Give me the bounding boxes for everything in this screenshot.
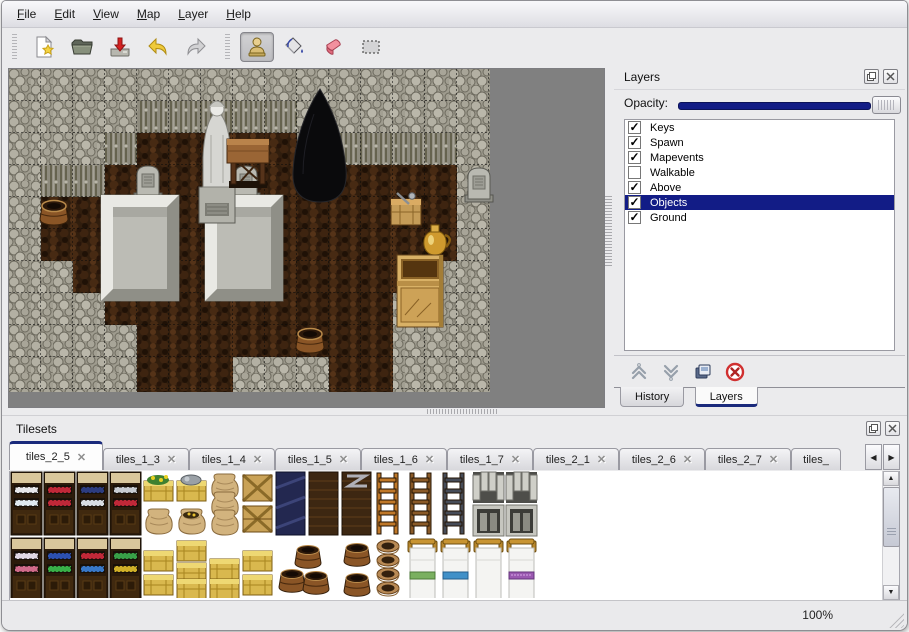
tile-ladder-steel[interactable]: [443, 473, 464, 534]
close-tab-icon[interactable]: ✕: [425, 453, 434, 466]
tile-sack-stack[interactable]: [212, 474, 238, 535]
gravestone-far-right: [465, 168, 493, 202]
menu-edit[interactable]: Edit: [45, 4, 84, 24]
tileset-tab-tiles_2_5[interactable]: tiles_2_5✕: [9, 441, 103, 470]
tile-shelf-blue-dishes[interactable]: [77, 472, 108, 535]
float-panel-button[interactable]: [866, 421, 881, 436]
save-map-button[interactable]: [103, 32, 137, 62]
tileset-tab-tiles_1_4[interactable]: tiles_1_4✕: [189, 448, 275, 470]
layer-visibility-checkbox[interactable]: ✓: [628, 121, 641, 134]
zoom-level: 100%: [802, 608, 833, 622]
tile-bed-white[interactable]: [474, 539, 503, 598]
menu-help[interactable]: Help: [217, 4, 260, 24]
close-tab-icon[interactable]: ✕: [339, 453, 348, 466]
close-tab-icon[interactable]: ✕: [683, 453, 692, 466]
stone-platform-left: [101, 195, 179, 301]
move-layer-up-icon: [629, 362, 649, 382]
undo-button[interactable]: [141, 32, 175, 62]
tab-history[interactable]: History: [620, 387, 684, 407]
layer-row-walkable[interactable]: ✓ Walkable: [625, 165, 894, 180]
opacity-slider-track[interactable]: [678, 102, 871, 110]
toolbar-grip[interactable]: [225, 34, 230, 60]
redo-icon: [184, 35, 208, 59]
tile-yellow-crate-stack-3[interactable]: [210, 559, 239, 598]
scrollbar-thumb[interactable]: [883, 487, 900, 547]
fill-tool-button[interactable]: [278, 32, 312, 62]
scroll-up-button[interactable]: ▲: [883, 471, 899, 486]
menu-file[interactable]: File: [8, 4, 45, 24]
tile-ladder-orange[interactable]: [377, 473, 398, 534]
layer-row-keys[interactable]: ✓ Keys: [625, 120, 894, 135]
layer-row-objects[interactable]: ✓ Objects: [625, 195, 894, 210]
float-icon: [869, 424, 878, 433]
close-panel-button[interactable]: [885, 421, 900, 436]
tile-flower-crate[interactable]: [144, 475, 173, 501]
map-tiles: [9, 69, 493, 392]
save-icon: [108, 35, 132, 59]
wooden-cabinet: [397, 255, 443, 327]
tile-dark-dresser[interactable]: [309, 472, 338, 535]
tile-stone-arch-left[interactable]: [473, 472, 504, 503]
close-tab-icon[interactable]: ✕: [597, 453, 606, 466]
tileset-tiles[interactable]: [10, 471, 880, 598]
move-layer-down-button[interactable]: [658, 360, 684, 384]
tile-shelf-dishes[interactable]: [11, 472, 42, 535]
tileset-content[interactable]: ▲ ▼: [9, 471, 900, 601]
toolbar-grip[interactable]: [12, 34, 17, 60]
close-tab-icon[interactable]: ✕: [253, 453, 262, 466]
layer-visibility-checkbox[interactable]: ✓: [628, 151, 641, 164]
tile-shelf-red-bottles[interactable]: [44, 472, 75, 535]
undo-icon: [146, 35, 170, 59]
tile-shelf-red-books[interactable]: [77, 538, 108, 598]
scroll-right-icon: ▶: [888, 453, 894, 462]
horizontal-splitter[interactable]: [427, 409, 497, 414]
tileset-tab-truncated[interactable]: tiles_: [791, 448, 841, 470]
tileset-scrollbar[interactable]: ▲ ▼: [882, 471, 899, 600]
eraser-tool-button[interactable]: [316, 32, 350, 62]
tile-burlap-sack[interactable]: [146, 509, 172, 534]
layers-panel-header: Layers: [614, 65, 905, 90]
scroll-down-button[interactable]: ▼: [883, 585, 899, 600]
layer-visibility-checkbox[interactable]: ✓: [628, 196, 641, 209]
barrel-bottom: [296, 329, 324, 354]
tileset-tab-tiles_2_6[interactable]: tiles_2_6✕: [619, 448, 705, 470]
eraser-tool-icon: [321, 35, 345, 59]
tile-stone-arch-right[interactable]: [506, 472, 537, 503]
tile-bed-blue[interactable]: [441, 539, 470, 598]
close-tab-icon[interactable]: ✕: [511, 453, 520, 466]
tilesets-panel: Tilesets tiles_2_5✕tiles_1_3✕tiles_1_4✕t…: [2, 415, 907, 601]
tileset-tab-tiles_1_7[interactable]: tiles_1_7✕: [447, 448, 533, 470]
layers-panel: Layers Opacity: ✓ Keys ✓: [614, 65, 905, 411]
tileset-tab-tiles_1_5[interactable]: tiles_1_5✕: [275, 448, 361, 470]
tile-stone-door-left[interactable]: [473, 505, 504, 536]
tile-yellow-crate-stack-2[interactable]: [177, 541, 206, 598]
scroll-down-icon: ▼: [888, 589, 895, 596]
scroll-tabs-right-button[interactable]: ▶: [883, 444, 900, 470]
editor-window: File Edit View Map Layer Help: [1, 0, 908, 631]
open-map-button[interactable]: [65, 32, 99, 62]
tileset-tab-bar: tiles_2_5✕tiles_1_3✕tiles_1_4✕tiles_1_5✕…: [9, 441, 900, 472]
close-tab-icon[interactable]: ✕: [769, 453, 778, 466]
close-icon: [886, 72, 895, 81]
tileset-tab-tiles_2_7[interactable]: tiles_2_7✕: [705, 448, 791, 470]
float-icon: [867, 72, 876, 81]
new-map-button[interactable]: [27, 32, 61, 62]
vertical-splitter[interactable]: [605, 196, 612, 266]
close-panel-button[interactable]: [883, 69, 898, 84]
tilesets-panel-title: Tilesets: [16, 422, 57, 436]
layer-list[interactable]: ✓ Keys ✓ Spawn ✓ Mapevents ✓ Walkable ✓ …: [624, 119, 895, 351]
opacity-slider-handle[interactable]: [872, 96, 901, 114]
move-layer-down-icon: [661, 362, 681, 382]
menu-map[interactable]: Map: [128, 4, 169, 24]
close-icon: [888, 424, 897, 433]
delete-layer-button[interactable]: [722, 360, 748, 384]
new-file-icon: [32, 35, 56, 59]
layers-panel-title: Layers: [624, 70, 660, 84]
tile-bed-green[interactable]: [408, 539, 437, 598]
select-tool-icon: [359, 35, 383, 59]
redo-button[interactable]: [179, 32, 213, 62]
duplicate-layer-icon: [693, 362, 713, 382]
layer-visibility-checkbox[interactable]: ✓: [628, 166, 641, 179]
layer-row-spawn[interactable]: ✓ Spawn: [625, 135, 894, 150]
tileset-tab-tiles_1_3[interactable]: tiles_1_3✕: [103, 448, 189, 470]
tile-stone-door-right[interactable]: [506, 505, 537, 536]
resize-grip-icon[interactable]: [886, 610, 904, 628]
tileset-tab-tiles_2_1[interactable]: tiles_2_1✕: [533, 448, 619, 470]
delete-layer-icon: [725, 362, 745, 382]
layer-visibility-checkbox[interactable]: ✓: [628, 181, 641, 194]
menu-view[interactable]: View: [84, 4, 128, 24]
layer-visibility-checkbox[interactable]: ✓: [628, 136, 641, 149]
status-bar: 100%: [2, 600, 907, 631]
menu-bar: File Edit View Map Layer Help: [2, 1, 907, 28]
tile-open-gold-sack[interactable]: [179, 509, 205, 534]
dock-tab-bar: History Layers: [614, 387, 905, 412]
scroll-left-icon: ◀: [870, 453, 876, 462]
float-panel-button[interactable]: [864, 69, 879, 84]
fill-tool-icon: [283, 35, 307, 59]
tileset-tab-tiles_1_6[interactable]: tiles_1_6✕: [361, 448, 447, 470]
layer-row-ground[interactable]: ✓ Ground: [625, 210, 894, 225]
map-canvas[interactable]: [9, 69, 602, 405]
tile-crossed-crate[interactable]: [243, 475, 272, 501]
layer-actions: [614, 355, 905, 388]
menu-layer[interactable]: Layer: [169, 4, 217, 24]
tile-bed-purple[interactable]: [507, 539, 536, 598]
scroll-up-icon: ▲: [888, 475, 895, 482]
scroll-tabs-left-button[interactable]: ◀: [865, 444, 882, 470]
open-folder-icon: [70, 35, 94, 59]
move-layer-up-button[interactable]: [626, 360, 652, 384]
tile-shelf-blue-books[interactable]: [44, 538, 75, 598]
tile-navy-crate[interactable]: [276, 472, 305, 535]
tile-shelf-bottles[interactable]: [110, 538, 141, 598]
toolbar: [2, 28, 907, 65]
tab-layers[interactable]: Layers: [695, 387, 758, 407]
close-tab-icon[interactable]: ✕: [77, 451, 86, 464]
stamp-tool-icon: [245, 35, 269, 59]
tile-ladder-brown[interactable]: [410, 473, 431, 534]
map-view[interactable]: [8, 68, 605, 408]
tile-shelf-jars[interactable]: [11, 538, 42, 598]
layer-row-above[interactable]: ✓ Above: [625, 180, 894, 195]
tile-plank-crate[interactable]: [243, 506, 272, 532]
stamp-tool-button[interactable]: [240, 32, 274, 62]
select-tool-button[interactable]: [354, 32, 388, 62]
duplicate-layer-button[interactable]: [690, 360, 716, 384]
layer-visibility-checkbox[interactable]: ✓: [628, 211, 641, 224]
layer-row-mapevents[interactable]: ✓ Mapevents: [625, 150, 894, 165]
opacity-label: Opacity:: [624, 96, 668, 110]
barrel-left: [40, 201, 68, 226]
close-tab-icon[interactable]: ✕: [167, 453, 176, 466]
tile-shelf-kettles[interactable]: [110, 472, 141, 535]
tile-metal-banded-chest[interactable]: [342, 472, 371, 535]
